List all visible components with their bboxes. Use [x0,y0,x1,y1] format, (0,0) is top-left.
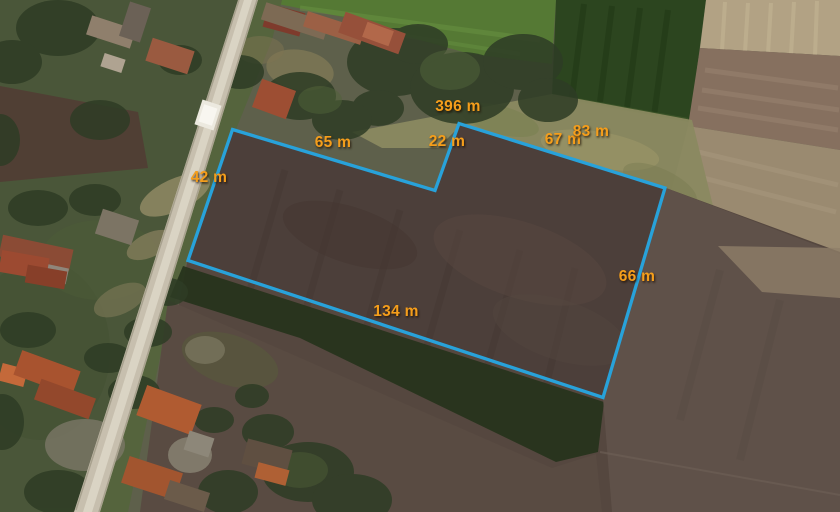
measurement-label-east: 66 m [619,268,656,285]
map-canvas: 396 m 42 m 65 m 22 m 67 m 83 m 66 m 134 … [0,0,840,512]
measurement-total-label: 396 m [435,98,480,115]
measurement-label-west: 42 m [191,169,228,186]
measurement-label-northwest: 65 m [315,134,352,151]
measurement-label-north-2: 83 m [573,123,610,140]
measurement-label-south: 134 m [373,303,418,320]
satellite-map[interactable]: 396 m 42 m 65 m 22 m 67 m 83 m 66 m 134 … [0,0,840,512]
measurement-label-notch: 22 m [429,133,466,150]
